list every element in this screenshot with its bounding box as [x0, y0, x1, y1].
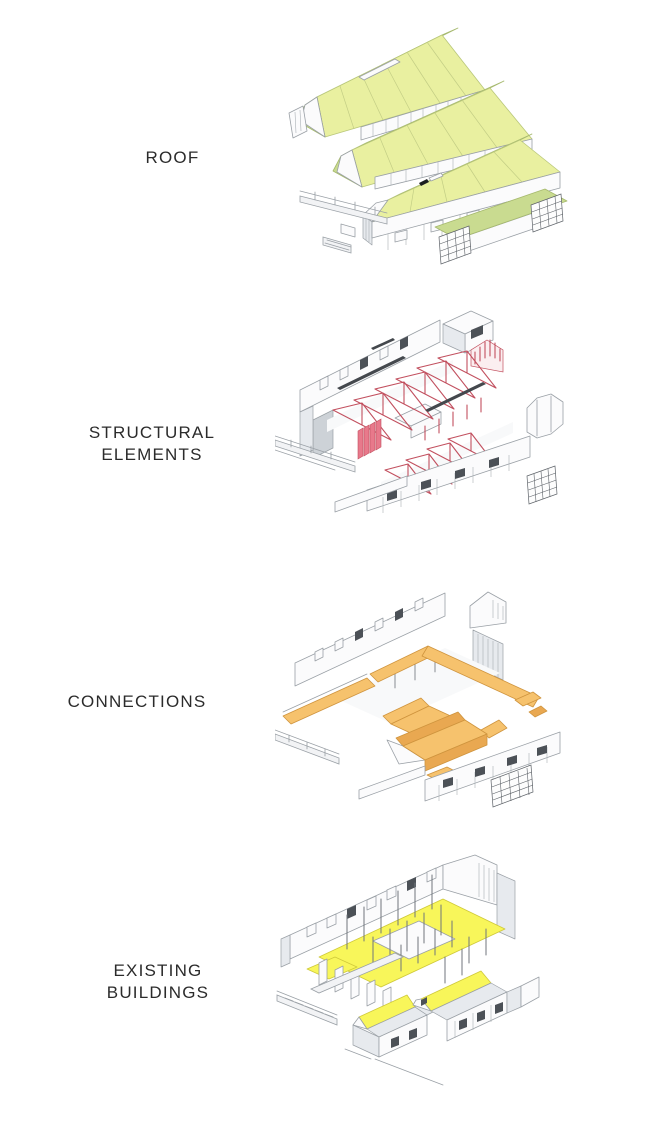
section-label-connections: CONNECTIONS [62, 691, 212, 713]
connections-drawing [275, 568, 605, 818]
section-label-structural-elements: STRUCTURAL ELEMENTS [72, 422, 232, 467]
section-label-roof: ROOF [130, 147, 215, 169]
existing-buildings-drawing [275, 843, 605, 1098]
exploded-axonometric-diagram: ROOF [0, 0, 650, 1144]
ground-lines [345, 1049, 443, 1085]
section-label-existing-buildings: EXISTING BUILDINGS [78, 960, 238, 1005]
access-ramp [275, 730, 339, 764]
roof-drawing [275, 15, 605, 265]
cottage-right [413, 971, 539, 1041]
access-ramp [277, 991, 337, 1025]
structural-elements-drawing [275, 290, 605, 540]
barn-end-wall [527, 394, 563, 438]
lattice-screen [527, 466, 557, 504]
